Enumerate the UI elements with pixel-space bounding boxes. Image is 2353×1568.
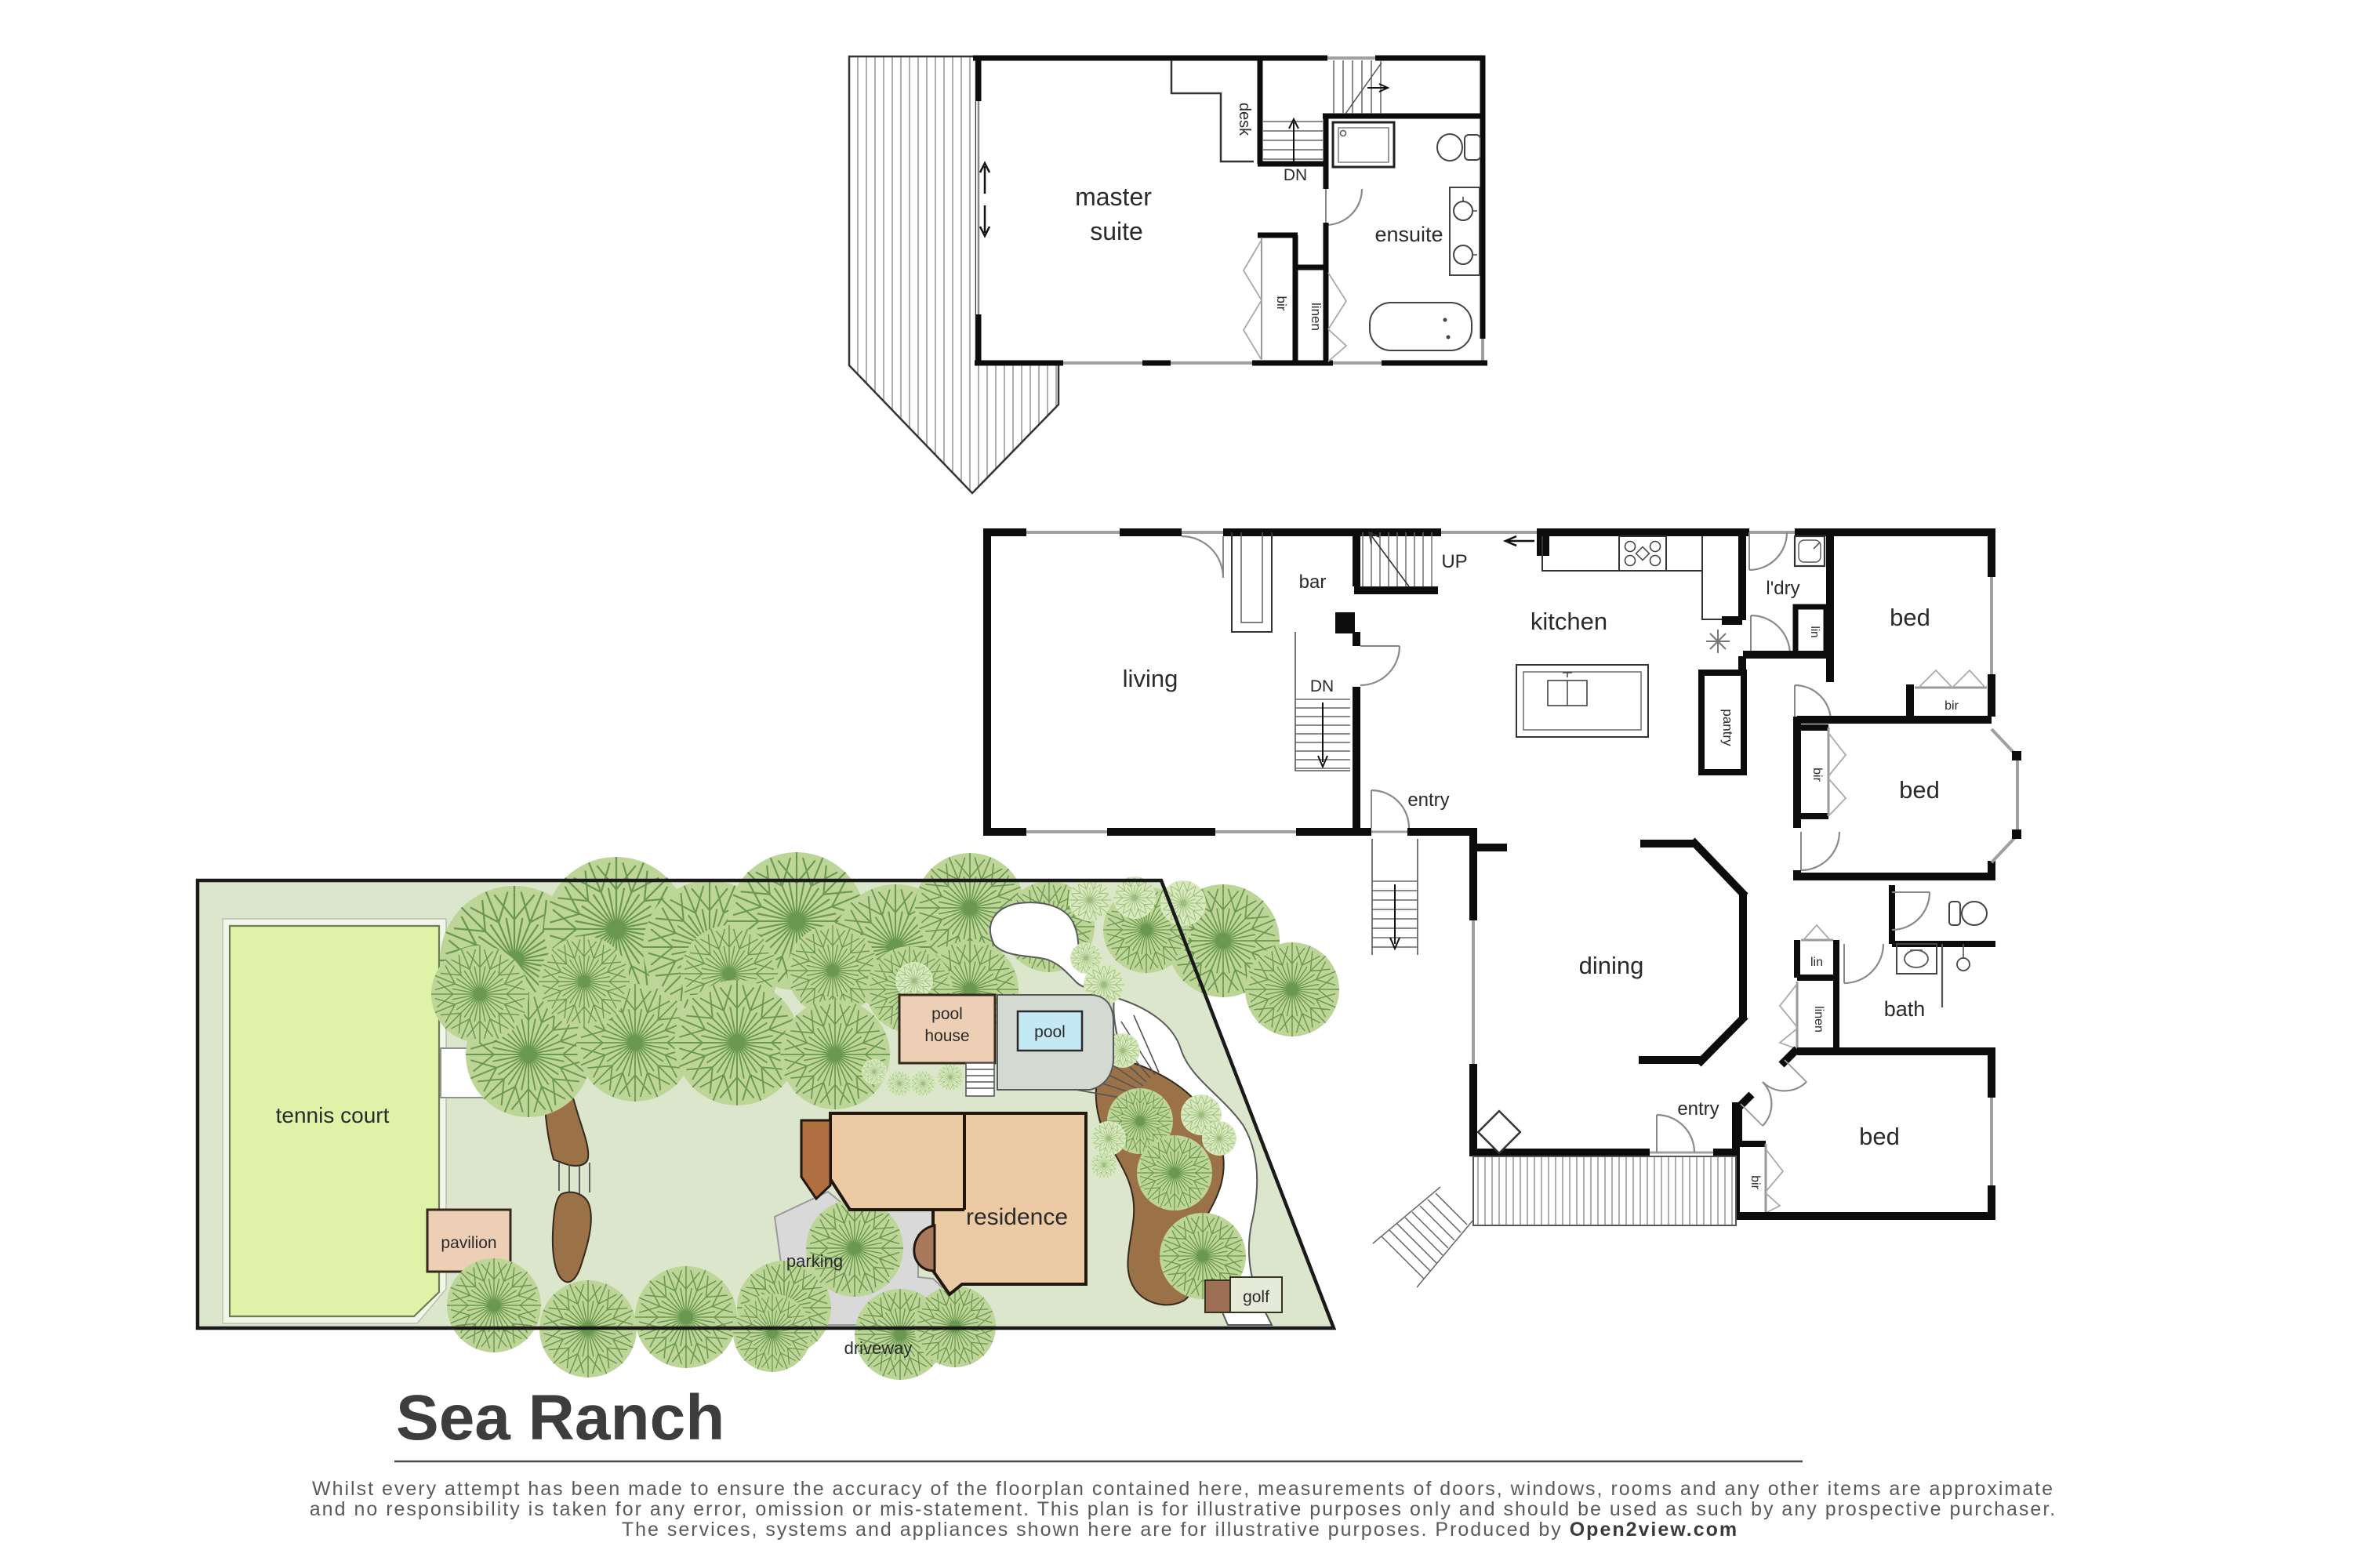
- svg-text:Sea Ranch: Sea Ranch: [396, 1382, 724, 1454]
- svg-text:and no responsibility is taken: and no responsibility is taken for any e…: [310, 1498, 2057, 1520]
- svg-text:UP: UP: [1441, 551, 1467, 572]
- svg-text:pavilion: pavilion: [441, 1234, 496, 1252]
- svg-text:residence: residence: [966, 1204, 1068, 1230]
- svg-text:bath: bath: [1884, 997, 1926, 1021]
- svg-text:l'dry: l'dry: [1766, 578, 1799, 599]
- svg-text:pool: pool: [931, 1005, 963, 1023]
- svg-text:living: living: [1123, 665, 1178, 692]
- svg-text:bir: bir: [1748, 1175, 1762, 1189]
- svg-text:house: house: [924, 1027, 969, 1045]
- svg-text:lin: lin: [1810, 956, 1823, 969]
- svg-text:bar: bar: [1299, 572, 1327, 593]
- svg-text:ensuite: ensuite: [1374, 223, 1443, 246]
- svg-text:master: master: [1075, 183, 1152, 211]
- svg-text:dining: dining: [1579, 952, 1644, 979]
- svg-text:Whilst every attempt has been: Whilst every attempt has been made to en…: [312, 1478, 2054, 1500]
- svg-text:driveway: driveway: [844, 1338, 913, 1358]
- svg-text:bir: bir: [1944, 699, 1959, 713]
- svg-text:bir: bir: [1274, 296, 1289, 311]
- svg-text:entry: entry: [1677, 1098, 1719, 1120]
- svg-text:desk: desk: [1236, 103, 1253, 136]
- svg-text:pantry: pantry: [1720, 709, 1735, 746]
- svg-text:bed: bed: [1859, 1123, 1900, 1150]
- svg-text:linen: linen: [1812, 1006, 1825, 1033]
- svg-text:suite: suite: [1090, 217, 1143, 245]
- svg-text:entry: entry: [1407, 789, 1449, 811]
- svg-text:DN: DN: [1284, 166, 1307, 184]
- svg-text:kitchen: kitchen: [1531, 608, 1607, 635]
- svg-text:DN: DN: [1310, 677, 1334, 695]
- svg-text:bed: bed: [1899, 776, 1940, 804]
- svg-text:The services, systems and appl: The services, systems and appliances sho…: [622, 1519, 1738, 1541]
- svg-text:tennis court: tennis court: [276, 1103, 390, 1127]
- svg-text:bed: bed: [1890, 604, 1930, 631]
- svg-text:lin: lin: [1808, 626, 1821, 637]
- svg-text:pool: pool: [1034, 1023, 1066, 1041]
- svg-text:linen: linen: [1309, 303, 1324, 331]
- svg-text:bir: bir: [1810, 768, 1824, 782]
- svg-text:parking: parking: [786, 1251, 843, 1271]
- svg-text:golf: golf: [1243, 1288, 1269, 1306]
